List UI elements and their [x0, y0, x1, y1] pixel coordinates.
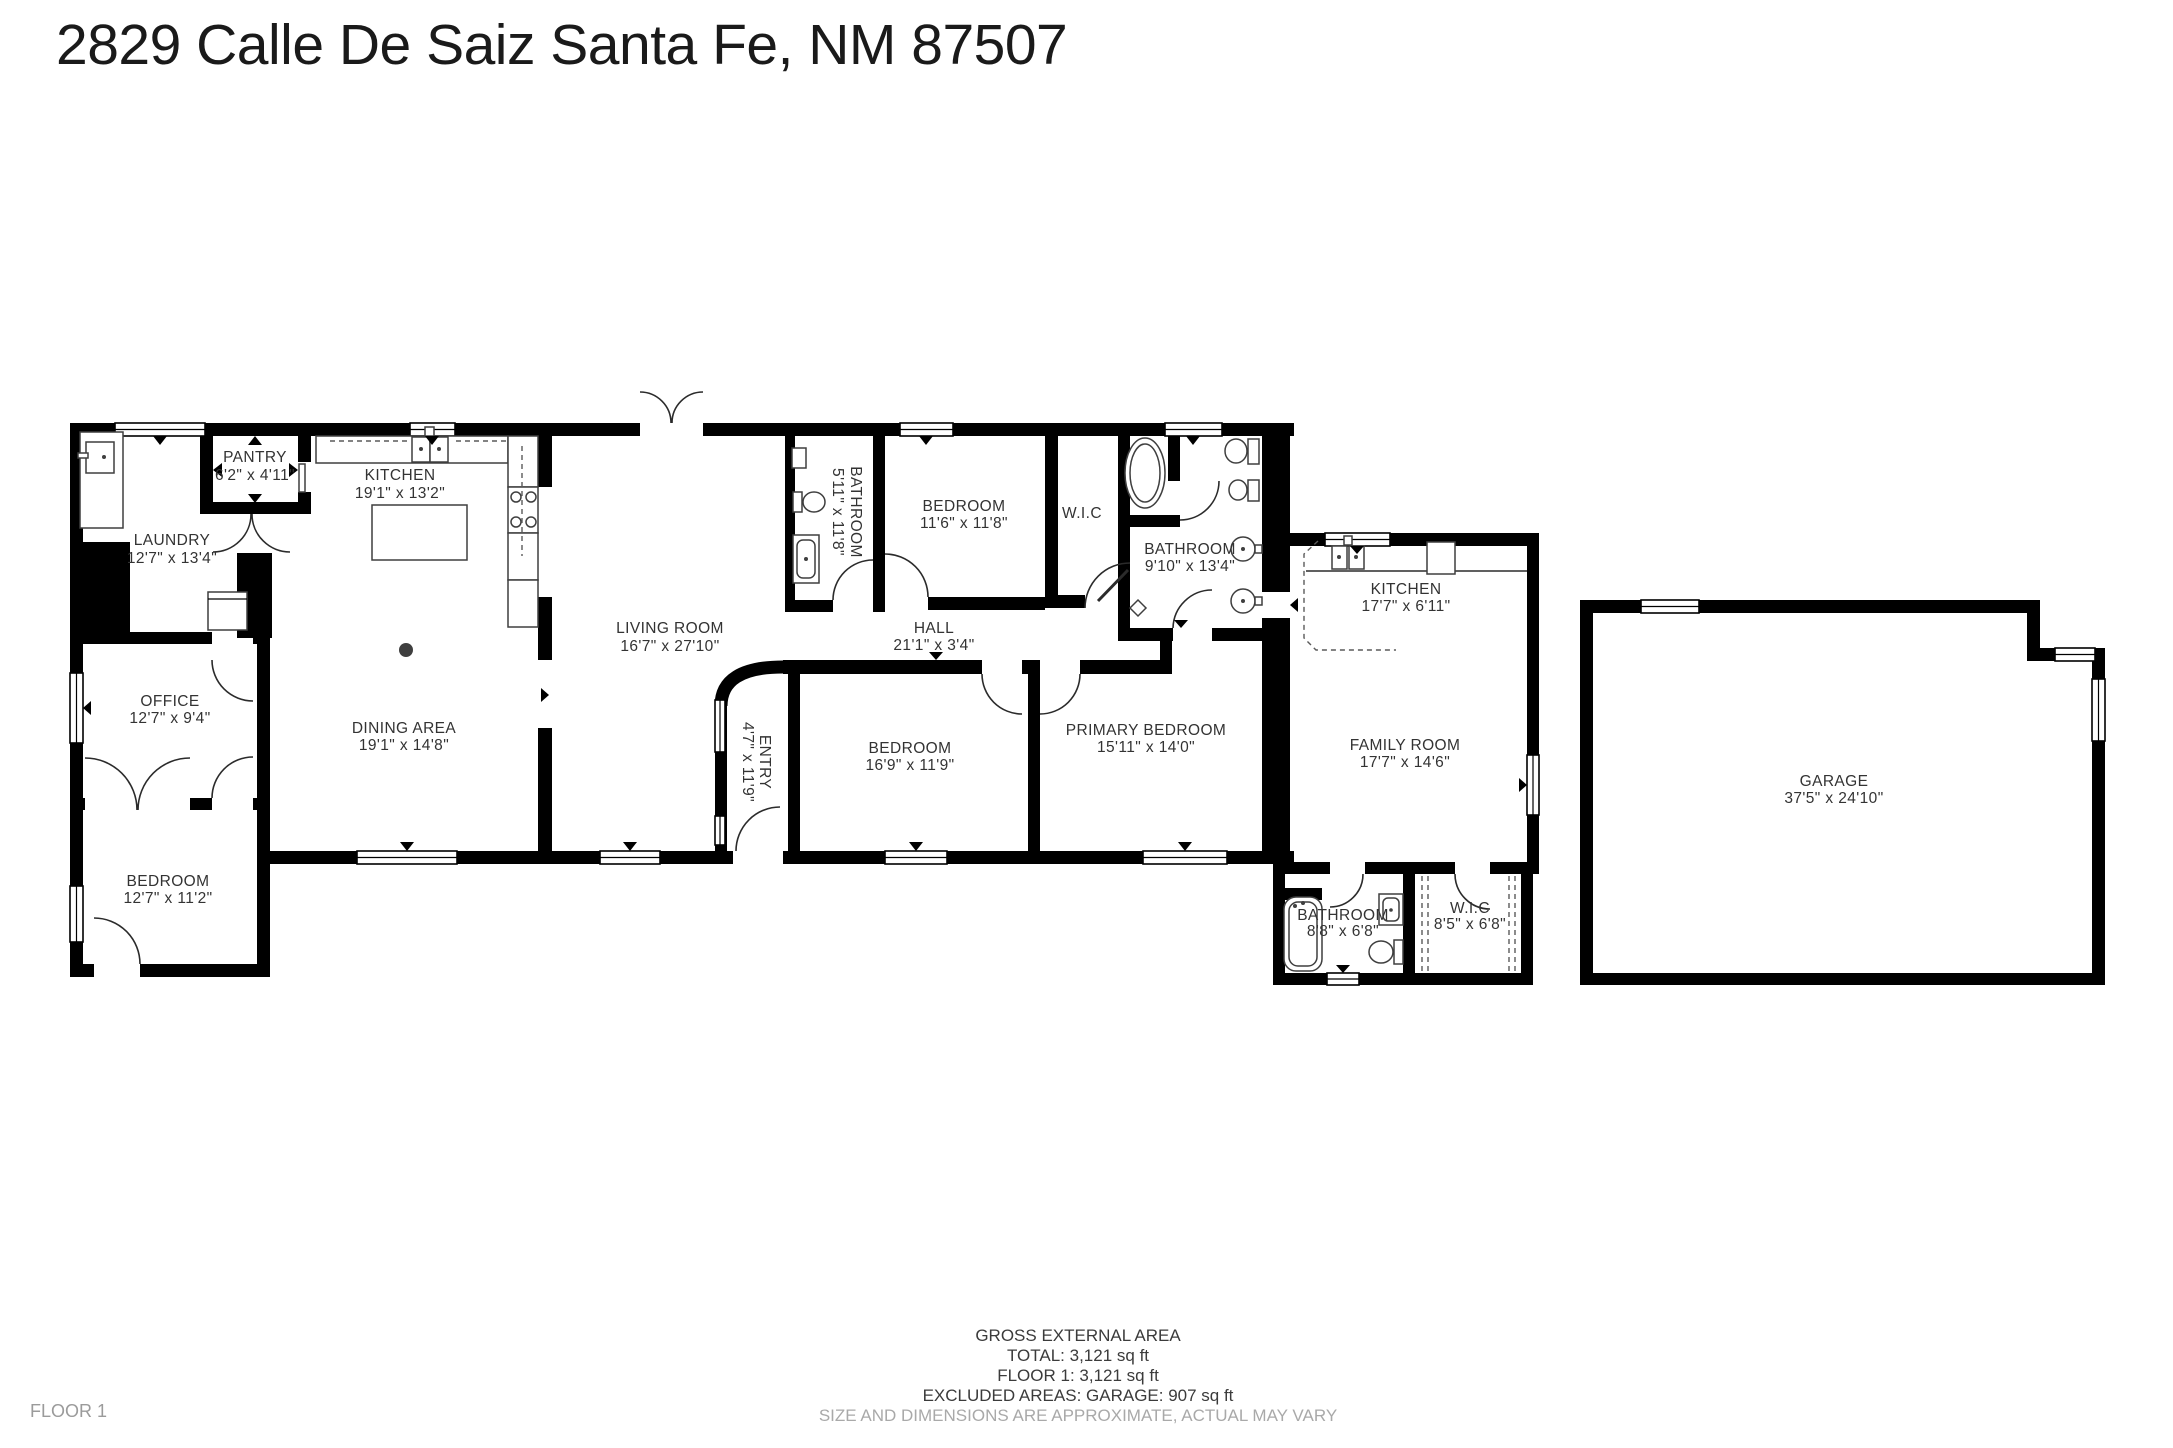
room-label-pantry: PANTRY [223, 449, 287, 466]
room-label-primary-bedroom: PRIMARY BEDROOM [1066, 722, 1226, 739]
living-patio-door-left [640, 392, 671, 423]
room-label-bedroom-mid: BEDROOM [869, 740, 952, 757]
tub-room-door [1180, 481, 1219, 520]
room-label-hall: HALL [914, 620, 954, 637]
kitchen-island [372, 505, 467, 560]
room-dims-garage: 37'5" x 24'10" [1784, 790, 1883, 807]
disclaimer: SIZE AND DIMENSIONS ARE APPROXIMATE, ACT… [819, 1406, 1337, 1426]
entry-front-door [736, 807, 780, 851]
room-dims-kitchen-right: 17'7" x 6'11" [1361, 598, 1450, 615]
window [70, 673, 83, 743]
room-label-kitchen-right: KITCHEN [1371, 581, 1442, 598]
pantry-door-right [252, 514, 290, 552]
room-label-bathroom-annex: BATHROOM [1297, 907, 1389, 924]
room-label-wic-annex: W.I.C [1450, 900, 1490, 917]
room-label-kitchen: KITCHEN [365, 467, 436, 484]
floorplan-page: 2829 Calle De Saiz Santa Fe, NM 87507 [0, 0, 2173, 1448]
living-patio-door-right [672, 392, 703, 423]
floorplan-svg: PANTRY 6'2" x 4'11" LAUNDRY 12'7" x 13'4… [0, 0, 2173, 1448]
family-bathroom-door [1330, 874, 1363, 907]
room-dims-living: 16'7" x 27'10" [620, 638, 719, 655]
bedroom-bl-door [94, 918, 140, 964]
room-dims-bathroom-annex: 8'8" x 6'8" [1307, 923, 1379, 940]
room-dims-bathroom-primary: 9'10" x 13'4" [1145, 558, 1235, 575]
room-label-bedroom-top: BEDROOM [923, 498, 1006, 515]
window [715, 700, 725, 752]
room-label-office: OFFICE [140, 693, 199, 710]
room-dims-hall: 21'1" x 3'4" [893, 637, 974, 654]
pocket-door [299, 464, 305, 492]
laundry-office-door [212, 660, 253, 701]
room-dims-family: 17'7" x 14'6" [1360, 754, 1450, 771]
room-label-bathroom-primary: BATHROOM [1144, 541, 1236, 558]
window [1327, 973, 1359, 985]
total-area: TOTAL: 3,121 sq ft [819, 1346, 1337, 1366]
floor1-area: FLOOR 1: 3,121 sq ft [819, 1366, 1337, 1386]
office-bedroom-door [212, 757, 253, 798]
office-double-door-right [138, 758, 190, 810]
floor-number-label: FLOOR 1 [30, 1401, 107, 1422]
annex-toilet [1369, 941, 1393, 963]
toilet-tank [1248, 439, 1259, 464]
room-dims-dining: 19'1" x 14'8" [359, 737, 449, 754]
hall-primary-door [1040, 674, 1080, 714]
window [1325, 533, 1390, 546]
room-label-family: FAMILY ROOM [1350, 737, 1461, 754]
window [1143, 851, 1227, 864]
pantry-door-left [213, 514, 251, 552]
window [2092, 679, 2105, 741]
kitchen-corner-cabinet [508, 436, 538, 487]
window [1641, 600, 1699, 613]
room-dims-office: 12'7" x 9'4" [129, 710, 210, 727]
kitchen-right-appliance [1427, 542, 1455, 574]
bath-small-sink [792, 448, 806, 468]
room-label-dining: DINING AREA [352, 720, 457, 737]
toilet [1225, 439, 1247, 463]
window [357, 851, 457, 864]
room-label-garage: GARAGE [1800, 773, 1869, 790]
window [115, 423, 205, 436]
room-dims-bedroom-bl: 12'7" x 11'2" [123, 890, 212, 907]
window [2055, 648, 2095, 661]
bathroom-small-door [833, 560, 873, 600]
utility-closet-door [86, 442, 114, 473]
room-dims-bathroom-small: 5'11" x 11'8" [829, 468, 846, 556]
window [900, 423, 953, 436]
room-dims-kitchen: 19'1" x 13'2" [355, 485, 445, 502]
room-dims-pantry: 6'2" x 4'11" [215, 467, 295, 484]
window [885, 851, 947, 864]
washer [208, 592, 247, 630]
office-double-door-left [85, 758, 137, 810]
bedroom-top-door [885, 554, 928, 597]
bath-small-toilet [803, 492, 825, 512]
room-dims-wic-annex: 8'5" x 6'8" [1434, 916, 1506, 933]
room-dims-bedroom-mid: 16'9" x 11'9" [865, 757, 954, 774]
room-dims-primary-bedroom: 15'11" x 14'0" [1097, 739, 1195, 756]
window [70, 886, 83, 942]
bath-small-toilet-tank [793, 492, 802, 512]
area-summary: GROSS EXTERNAL AREA TOTAL: 3,121 sq ft F… [819, 1326, 1337, 1426]
room-label-bathroom-small: BATHROOM [847, 466, 864, 558]
ceiling-fan [399, 643, 413, 657]
room-label-bedroom-bl: BEDROOM [127, 873, 210, 890]
window [1165, 423, 1222, 436]
window [600, 851, 660, 864]
room-dims-bedroom-top: 11'6" x 11'8" [920, 515, 1008, 532]
room-label-laundry: LAUNDRY [134, 532, 211, 549]
hall-bedroom-door [982, 674, 1022, 714]
room-dims-entry: 4'7" x 11'9" [739, 722, 756, 802]
window [1527, 755, 1539, 815]
annex-toilet-tank [1394, 940, 1403, 964]
room-label-wic-top: W.I.C [1062, 505, 1102, 522]
room-dims-laundry: 12'7" x 13'4" [127, 550, 217, 567]
entry-curved-wall [721, 667, 783, 706]
excluded-area: EXCLUDED AREAS: GARAGE: 907 sq ft [819, 1386, 1337, 1406]
room-label-living: LIVING ROOM [616, 620, 724, 637]
gross-area-heading: GROSS EXTERNAL AREA [819, 1326, 1337, 1346]
corner-shower [1130, 600, 1146, 616]
window [715, 816, 725, 845]
room-label-entry: ENTRY [756, 735, 773, 789]
